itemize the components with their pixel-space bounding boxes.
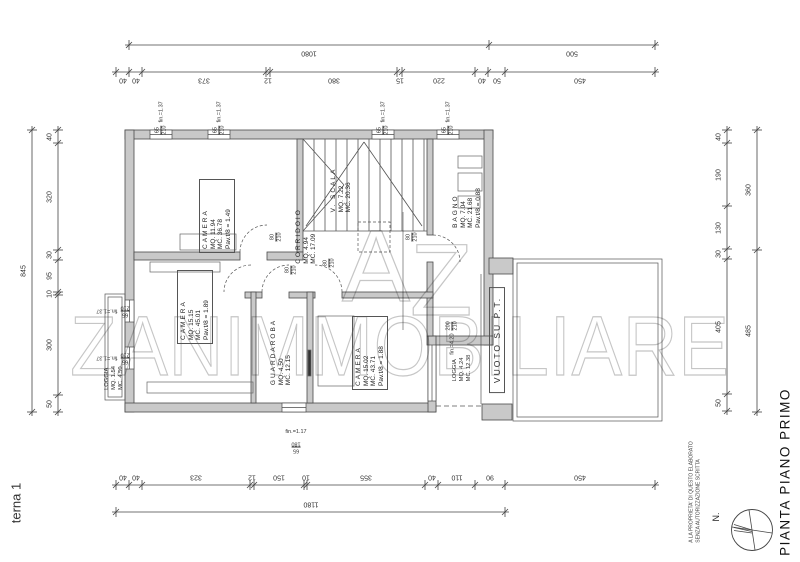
dim-label: 12 [248,474,256,481]
dim-label: 15 [396,77,404,84]
door-label: 80210 [285,265,298,274]
dim-label: 90 [486,474,494,481]
room-label-scala: V. SCALA MQ. 7.22MC. 20.36 [330,168,353,213]
dim-label: 95 [47,272,54,280]
dim-label: 40 [132,474,140,481]
window-label: 65180 [291,441,300,454]
dim-label: 1080 [301,50,317,57]
room-label-vuoto: VUOTO SU P.T. [489,287,505,393]
room-label-guardaroba: GUARDAROBA MQ. 4.50MC. 12.15 [270,319,293,385]
floor-plan-sheet: ZANIMMOBILIARE A Z [0,0,800,562]
room-label-corridoio: CORRIDOIO MQ. 4.94MC. 17.09 [295,208,318,264]
dim-label: 30 [716,250,723,258]
dim-label: 40 [47,133,54,141]
dim-label: 1180 [303,501,318,508]
room-label-camera2: CAMERA MQ. 15.15MC. 45.01 Pav.t/8 = 1.89 [177,270,213,344]
north-label: N. [711,513,721,522]
dim-label: 485 [746,325,753,337]
window-label: 65210 fin.=1.37 [96,305,129,318]
dim-label: 40 [716,133,723,141]
dim-label: 220 [433,77,445,84]
dim-label: 450 [574,474,586,481]
dim-label: 40 [478,77,486,84]
room-label-loggia-right: LOGGIA MQ. 4.24MC. 12.38 [452,355,472,382]
copyright-note: A LA PROPRIETA' DI QUESTO ELABORATO SENZ… [689,441,702,542]
dim-label: 380 [328,77,340,84]
dim-label: 50 [47,400,54,408]
dim-label: 40 [132,77,140,84]
dim-label: 845 [21,265,28,277]
north-compass-icon [726,504,778,556]
dim-label: 373 [198,77,210,84]
window-label: 65210 fin.=1.37 [155,101,168,134]
dim-label: 40 [119,474,127,481]
dim-label: 50 [493,77,501,84]
window-label: 65210 fin.=1.37 [213,101,226,134]
sheet-side-label: terna 1 [9,483,24,523]
dim-label: 405 [716,321,723,333]
door-label: 80210 [270,232,283,241]
dim-label: 12 [264,77,272,84]
dim-label: 500 [566,50,578,57]
window-label: fin.=1.17 [285,429,306,435]
dim-label: 10 [302,474,310,481]
dim-label: 10 [47,290,54,298]
dim-label: 323 [190,474,202,481]
dim-label: 50 [716,399,723,407]
door-label: 80210 [406,232,419,241]
dim-label: 355 [360,474,372,481]
dim-label: 40 [428,474,436,481]
dim-label: 320 [47,191,54,203]
dim-label: 150 [273,474,285,481]
dim-label: 110 [451,474,462,481]
dim-label: 360 [746,184,753,196]
dim-label: 30 [47,251,54,259]
room-label-loggia-left: LOGGIA MQ. 1.54MC. 4.50 [104,366,124,390]
room-label-bagno: BAGNO MQ. 7.04MC. 21.68 Pav.t/8 = 0.88 [452,188,482,228]
dim-label: 40 [119,77,127,84]
room-label-camera1: CAMERA MQ. 11.94MC. 36.78 Pav.t/8 = 1.49 [199,179,235,253]
window-label: 65210 fin.=1.37 [96,352,129,365]
door-label: 80210 [323,258,336,267]
room-label-camera3: CAMERA MQ. 15.02MC. 43.71 Pav.t/8 = 1.88 [352,316,388,390]
dim-label: 130 [716,222,723,234]
dim-label: 300 [47,339,54,351]
dim-label: 450 [574,77,586,84]
window-label: 65210 fin.=1.37 [377,101,390,134]
window-label: fin.=4.20 200210 [446,321,459,354]
watermark-divider-bar [402,212,404,330]
dim-label: 190 [716,169,723,181]
window-label: 65210 fin.=1.37 [442,101,455,134]
drawing-title: PIANTA PIANO PRIMO [778,388,793,556]
